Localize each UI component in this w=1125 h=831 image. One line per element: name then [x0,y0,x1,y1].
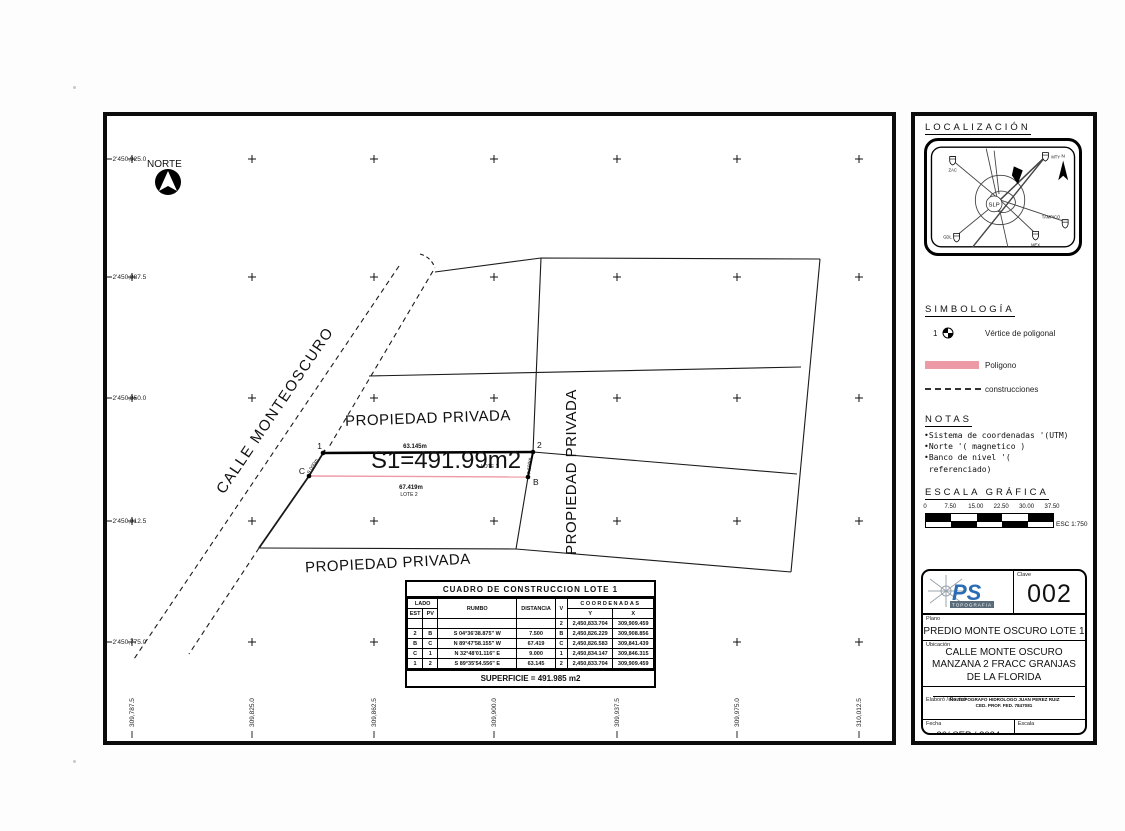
lote1-label: LOTE 1 [481,464,498,470]
table-row: C1N 32°48'01.116" E9.00012,450,834.14730… [408,649,654,659]
grid-cross [370,394,378,402]
table-cell: 9.000 [517,649,555,659]
plan-page: 2'450,925.02'450,887.52'450,850.02'450,8… [0,0,1125,831]
grid-cross [490,394,498,402]
grid-cross [613,155,621,163]
table-cell: S 04°36'38.875" W [438,629,517,639]
divider-mid [369,367,801,376]
grid-cross [370,155,378,163]
table-cell: 309,908.856 [613,629,654,639]
table-cell: S 89°35'54.556" E [438,659,517,669]
private-bottom-label: PROPIEDAD PRIVADA [305,551,471,577]
table-cell: 1 [423,649,438,659]
vertex-dot-b [526,475,531,480]
private-right-label: PROPIEDAD PRIVADA [563,389,580,555]
lot-edge-bottom-pink [309,476,528,477]
table-cell: C [423,639,438,649]
scale-ratio-label: ESC 1:750 [1056,521,1087,528]
shield-label: MTY [1051,155,1060,160]
y-axis-label: 2'450,850.0 [113,395,147,402]
col-est: EST [408,609,423,619]
grid-cross [490,273,498,281]
table-cell: 2,450,833.704 [567,659,613,669]
scale-tick-label: 0 [923,504,926,510]
vertex-label-1: 1 [317,441,322,451]
legend-vertex-number: 1 [933,329,937,338]
ubicacion-cell: Ubicación CALLE MONTE OSCURO MANZANA 2 F… [923,641,1085,687]
dim-left: 9.000m [306,458,320,475]
legend-polygon: Poligono [925,358,1016,372]
grid-cross [248,394,256,402]
x-axis-label: 310,012.5 [856,698,863,727]
col-rumbo: RUMBO [438,599,517,619]
note-line: referenciado) [924,464,1069,475]
table-cell: B [423,629,438,639]
lot-area-label: S1=491.99m2 [371,447,521,474]
legend-polygon-label: Poligono [985,361,1016,370]
col-v: V [555,599,567,619]
x-axis-label: 309,900.0 [491,698,498,727]
highway-shield-icon [950,157,956,165]
private-top-label: PROPIEDAD PRIVADA [345,407,511,430]
col-pv: PV [423,609,438,619]
scale-tick-label: 7.50 [945,504,957,510]
street-edge-west [134,266,399,659]
col-y: Y [567,609,613,619]
table-cell: 7.500 [517,629,555,639]
x-axis-label: 309,825.0 [249,698,256,727]
north-arrow: NORTE [147,159,182,195]
grid-cross [370,517,378,525]
norte-label: NORTE [147,159,182,170]
y-axis-label: 2'450,812.5 [113,518,147,525]
notes-block: •Sistema de coordenadas '(UTM)•Norte '( … [924,430,1069,475]
grid-cross [733,394,741,402]
shield-tampico: TAMPICO [1042,215,1068,228]
simbologia-title: SIMBOLOGÍA [925,304,1015,317]
parcel-boundaries [259,258,820,572]
table-cell: 2 [555,659,567,669]
vertex-dot-1 [321,451,326,456]
highway-shield-icon [1062,220,1068,228]
legend-constructions: construcciones [925,382,1038,396]
grid-cross [370,638,378,646]
table-cell [517,619,555,629]
vertex-label-c: C [299,466,305,476]
grid-cross [733,273,741,281]
x-axis-label: 309,787.5 [129,698,136,727]
graphic-scale: 07.5015.0022.5030.0037.50 ESC 1:750 [925,504,1095,536]
grid-cross [613,394,621,402]
shield-gdl: GDL [943,234,959,242]
street-label: CALLE MONTEOSCURO [213,324,337,497]
grid-cross [733,638,741,646]
table-cell: 63.145 [517,659,555,669]
col-lado: LADO [408,599,438,609]
title-block-row1: PS TOPOGRAFIA Clave 002 [923,571,1085,615]
grid-cross [490,155,498,163]
escala-label: Escala [1018,721,1035,727]
ps-topografia-logo-icon: PS TOPOGRAFIA [926,573,1010,611]
scale-tick-label: 22.50 [994,504,1009,510]
construction-table-title: CUADRO DE CONSTRUCCION LOTE 1 [407,582,654,598]
legend-vertex-label: Vértice de poligonal [985,329,1055,338]
title-block: PS TOPOGRAFIA Clave 002 Plano PREDIO MON… [921,569,1087,735]
ubicacion-line: DE LA FLORIDA [967,672,1041,687]
vertex-dot-2 [531,450,536,455]
table-cell: C [408,649,423,659]
clave-label: Clave [1017,572,1031,578]
escala-value: 1:750-Tabloide(17x11) [1023,733,1077,735]
grid-cross [613,273,621,281]
note-line: •Norte '( magnetico ) [924,441,1069,452]
construction-table-grid: LADO RUMBO DISTANCIA V COORDENADAS EST P… [407,598,654,669]
y-axis-label: 2'450,775.0 [113,639,147,646]
vertex-label-2: 2 [537,440,542,450]
table-cell: 309,909.459 [613,619,654,629]
ubicacion-line: MANZANA 2 FRACC GRANJAS [932,659,1076,672]
highway-shield-icon [1042,153,1048,161]
grid-cross [248,273,256,281]
table-cell: 2,450,833.704 [567,619,613,629]
table-cell: 309,841.439 [613,639,654,649]
table-cell: 1 [555,649,567,659]
table-cell: B [408,639,423,649]
table-cell [408,619,423,629]
scale-bar [925,513,1054,528]
table-cell: 2 [408,629,423,639]
plano-cell: Plano PREDIO MONTE OSCURO LOTE 1 [923,615,1085,641]
vertex-symbol-icon [942,327,954,339]
plano-value: PREDIO MONTE OSCURO LOTE 1 [923,626,1085,640]
dim-top: 63.145m [403,444,427,450]
construction-swatch [925,388,981,390]
elaboro-cedula: CED. PROF. FED. 7847081 [923,703,1085,708]
x-axis-label: 309,937.5 [614,698,621,727]
table-cell: 2 [555,619,567,629]
grid-cross [248,155,256,163]
ubicacion-label: Ubicación [926,642,950,648]
table-cell [438,619,517,629]
table-cell: 2,450,834.147 [567,649,613,659]
table-row: 22,450,833.704309,909.459 [408,619,654,629]
table-cell: 1 [408,659,423,669]
road [1000,200,1036,234]
map-north-icon [1058,160,1068,180]
dim-bottom: 67.419m [399,485,423,491]
elaboro-cell: Elaboró / Revisó ING.TOPOGRAFO HIDROLOGO… [923,696,1085,720]
page-mark [73,86,76,89]
location-map: SLP N ZAC MTY TAMPICO [924,138,1082,256]
grid-cross [855,155,863,163]
y-axis-label: 2'450,925.0 [113,156,147,163]
shield-label: MEX [1031,242,1040,247]
lote2-label: LOTE 2 [400,492,417,498]
grid-cross [248,517,256,525]
table-cell [423,619,438,629]
street-curve [420,254,435,268]
page-mark [73,760,76,763]
x-axis-label: 309,975.0 [734,698,741,727]
construction-table: CUADRO DE CONSTRUCCION LOTE 1 LADO RUMBO… [405,580,656,688]
dim-right: 7.500m [526,457,533,474]
table-row: 2BS 04°36'38.875" W7.500B2,450,826.22930… [408,629,654,639]
shield-label: GDL [943,234,952,239]
table-cell: N 89°47'58.155" W [438,639,517,649]
note-line: •Sistema de coordenadas '(UTM) [924,430,1069,441]
boundary-top [435,258,820,272]
table-cell: N 32°48'01.116" E [438,649,517,659]
table-cell: 67.419 [517,639,555,649]
company-logo: PS TOPOGRAFIA [923,571,1014,613]
grid-cross [613,517,621,525]
grid-cross [855,638,863,646]
table-cell: 309,846.315 [613,649,654,659]
city-center-label: SLP [989,202,1000,208]
grid-cross [855,394,863,402]
site-marker-icon [1012,166,1023,184]
superficie-label: SUPERFICIE = 491.985 m2 [407,669,654,686]
col-x: X [613,609,654,619]
clave-value: 002 [1027,580,1072,609]
boundary-right [791,259,820,572]
scale-tick-label: 30.00 [1019,504,1034,510]
scale-bar-row [926,514,1053,521]
escala-cell: Escala 1:750-Tabloide(17x11) [1015,720,1085,735]
shield-mty: MTY [1042,153,1060,161]
street-edge-east-lower [189,548,259,654]
fecha-label: Fecha [926,721,941,727]
table-cell: C [555,639,567,649]
grid-cross [733,517,741,525]
highway-shield-icon [1033,232,1039,240]
divider-vertical-lower [516,477,528,549]
col-coordenadas: COORDENADAS [567,599,653,609]
shield-zac: ZAC [949,157,957,173]
x-axis-label: 309,862.5 [371,698,378,727]
polygon-swatch [925,361,979,369]
grid-cross [855,273,863,281]
grid-cross [248,638,256,646]
grid-crosses [128,155,863,646]
elaboro-label: Elaboró / Revisó [926,697,966,703]
fecha-cell: Fecha 30/ SEP / 2024 [923,720,1015,735]
localizacion-title: LOCALIZACIÓN [925,122,1031,135]
shield-label: ZAC [949,167,957,172]
plano-label: Plano [926,616,940,622]
x-axis-labels: 309,787.5309,825.0309,862.5309,900.0309,… [129,698,863,738]
logo-subtext: TOPOGRAFIA [952,602,992,607]
fecha-escala-row: Fecha 30/ SEP / 2024 Escala 1:750-Tabloi… [923,720,1085,735]
grid-cross [855,517,863,525]
legend-vertex: 1 Vértice de poligonal [925,326,1055,340]
ubicacion-line: CALLE MONTE OSCURO [945,647,1062,660]
table-cell: 2 [423,659,438,669]
y-axis-labels: 2'450,925.02'450,887.52'450,850.02'450,8… [107,156,147,647]
table-cell: 2,450,826.229 [567,629,613,639]
scale-tick-labels: 07.5015.0022.5030.0037.50 [925,504,1095,512]
road [1000,157,1045,200]
legend-constructions-label: construcciones [985,385,1038,394]
drawing-frame: 2'450,925.02'450,887.52'450,850.02'450,8… [103,112,896,745]
shield-label: TAMPICO [1042,215,1061,220]
highway-shield-icon [954,234,960,242]
map-north-label: N [1061,154,1065,160]
table-cell: 2,450,826.583 [567,639,613,649]
grid-cross [490,517,498,525]
scale-bar-row [926,521,1053,528]
vertex-label-b: B [533,477,539,487]
divider-vertical-upper [533,258,541,452]
col-distancia: DISTANCIA [517,599,555,619]
table-cell: B [555,629,567,639]
shield-mex: MEX [1031,232,1040,248]
clave-cell: Clave 002 [1014,571,1085,613]
table-row: BCN 89°47'58.155" W67.419C2,450,826.5833… [408,639,654,649]
notas-title: NOTAS [925,414,972,427]
table-cell: 309,909.459 [613,659,654,669]
escala-title: ESCALA GRÁFICA [925,487,1049,500]
map-roads [953,149,1065,248]
y-axis-label: 2'450,887.5 [113,274,147,281]
grid-cross [733,155,741,163]
note-line: •Banco de nivel '( [924,452,1069,463]
info-panel: LOCALIZACIÓN SLP [911,112,1097,745]
fecha-value: 30/ SEP / 2024 [936,730,1000,735]
table-row: 12S 89°35'54.556" E63.14522,450,833.7043… [408,659,654,669]
location-map-svg: SLP N ZAC MTY TAMPICO [929,143,1077,251]
grid-cross [370,273,378,281]
scale-tick-label: 15.00 [968,504,983,510]
scale-tick-label: 37.50 [1044,504,1059,510]
